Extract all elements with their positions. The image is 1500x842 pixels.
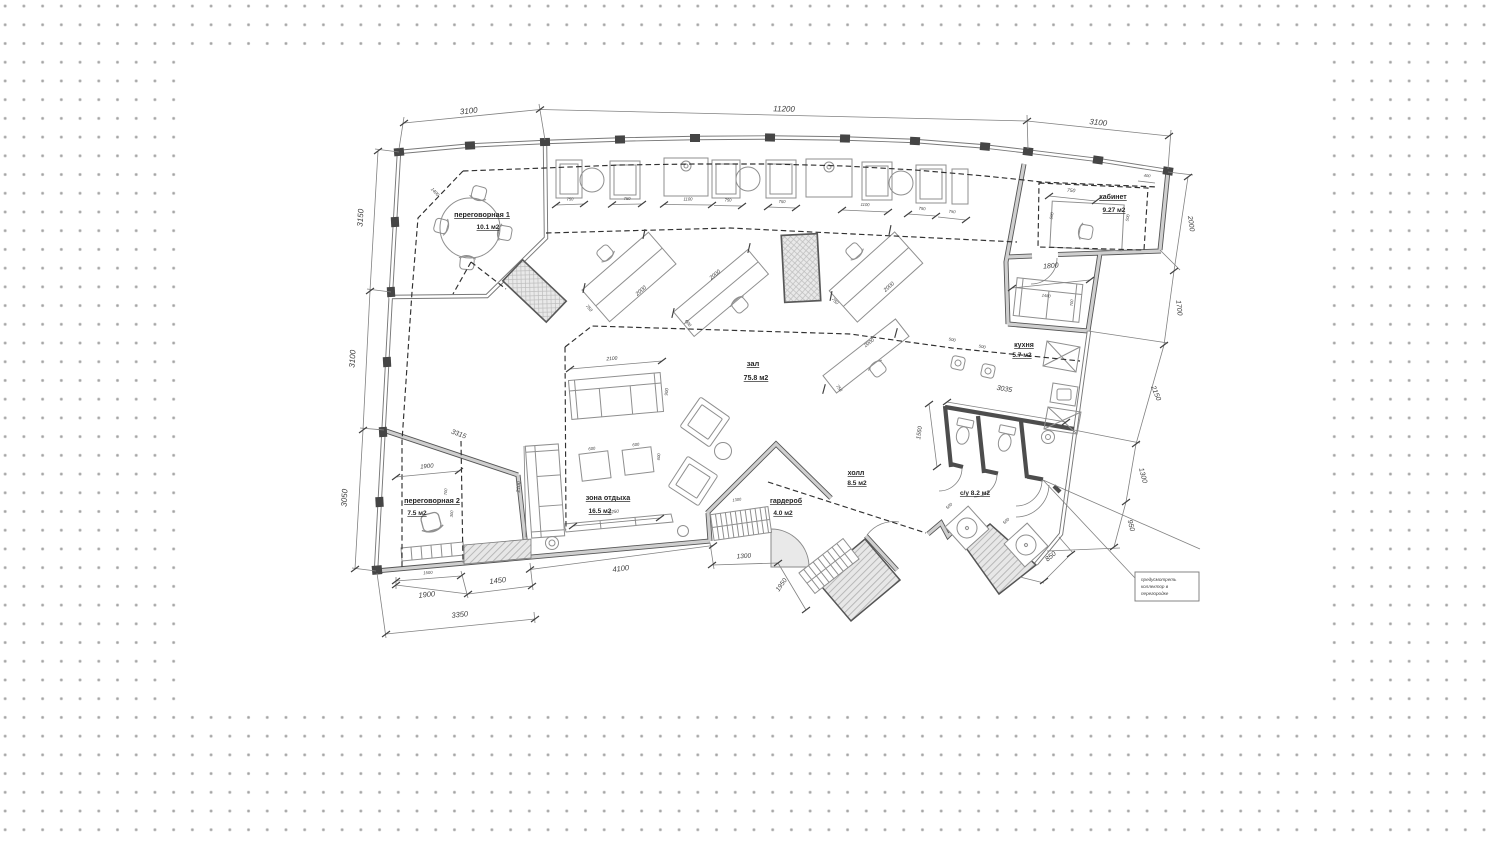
svg-text:3100: 3100 xyxy=(1089,117,1108,128)
svg-text:700: 700 xyxy=(1069,299,1075,307)
svg-text:1100: 1100 xyxy=(683,197,693,202)
svg-text:750: 750 xyxy=(778,199,786,204)
svg-text:переговорная 2: переговорная 2 xyxy=(404,496,460,505)
svg-text:3100: 3100 xyxy=(459,106,478,117)
svg-text:600: 600 xyxy=(588,446,596,452)
svg-text:600: 600 xyxy=(656,453,662,461)
svg-text:3350: 3350 xyxy=(451,609,469,620)
svg-text:11200: 11200 xyxy=(773,104,795,114)
svg-text:300: 300 xyxy=(449,510,455,518)
svg-text:750: 750 xyxy=(724,197,732,202)
svg-text:кухня: кухня xyxy=(1014,342,1034,349)
svg-text:750: 750 xyxy=(566,196,574,201)
svg-text:400: 400 xyxy=(1144,173,1152,179)
svg-text:гардероб: гардероб xyxy=(770,497,803,505)
svg-text:холл: холл xyxy=(848,470,865,477)
svg-text:3100: 3100 xyxy=(347,349,357,368)
svg-text:3050: 3050 xyxy=(340,488,350,507)
svg-text:1900: 1900 xyxy=(420,463,434,470)
svg-text:с/у 8.2 м2: с/у 8.2 м2 xyxy=(960,490,990,497)
svg-text:1500: 1500 xyxy=(423,570,433,576)
svg-text:9.27 м2: 9.27 м2 xyxy=(1103,207,1126,214)
svg-text:1100: 1100 xyxy=(860,202,870,207)
svg-text:3150: 3150 xyxy=(355,208,365,227)
svg-text:750: 750 xyxy=(623,196,631,201)
svg-text:7.5 м2: 7.5 м2 xyxy=(407,510,427,517)
svg-text:2100: 2100 xyxy=(515,481,522,494)
svg-text:зал: зал xyxy=(747,359,760,368)
svg-text:5.7 м2: 5.7 м2 xyxy=(1012,352,1032,359)
svg-text:4.0 м2: 4.0 м2 xyxy=(773,510,793,517)
svg-text:8.5 м2: 8.5 м2 xyxy=(847,480,867,487)
svg-text:1480: 1480 xyxy=(1041,293,1051,299)
svg-text:10.1 м2: 10.1 м2 xyxy=(477,224,500,231)
svg-text:1800: 1800 xyxy=(1043,262,1059,270)
svg-text:16.5 м2: 16.5 м2 xyxy=(589,508,612,515)
svg-text:700: 700 xyxy=(443,488,449,496)
svg-text:перегородке: перегородке xyxy=(1141,591,1169,596)
svg-text:кабинет: кабинет xyxy=(1099,193,1127,201)
svg-text:75.8 м2: 75.8 м2 xyxy=(744,375,769,382)
svg-text:переговорная 1: переговорная 1 xyxy=(454,210,510,219)
svg-text:1900: 1900 xyxy=(418,589,436,600)
svg-text:коллектор в: коллектор в xyxy=(1141,584,1169,589)
svg-text:1300: 1300 xyxy=(736,552,751,560)
svg-text:2100: 2100 xyxy=(605,356,618,363)
svg-text:750: 750 xyxy=(918,206,926,212)
svg-text:750: 750 xyxy=(1067,188,1076,195)
svg-text:900: 900 xyxy=(664,387,670,395)
svg-text:750: 750 xyxy=(948,209,956,215)
svg-text:600: 600 xyxy=(632,442,640,448)
svg-text:предусмотреть: предусмотреть xyxy=(1141,577,1177,582)
svg-text:зона отдыха: зона отдыха xyxy=(586,493,631,502)
